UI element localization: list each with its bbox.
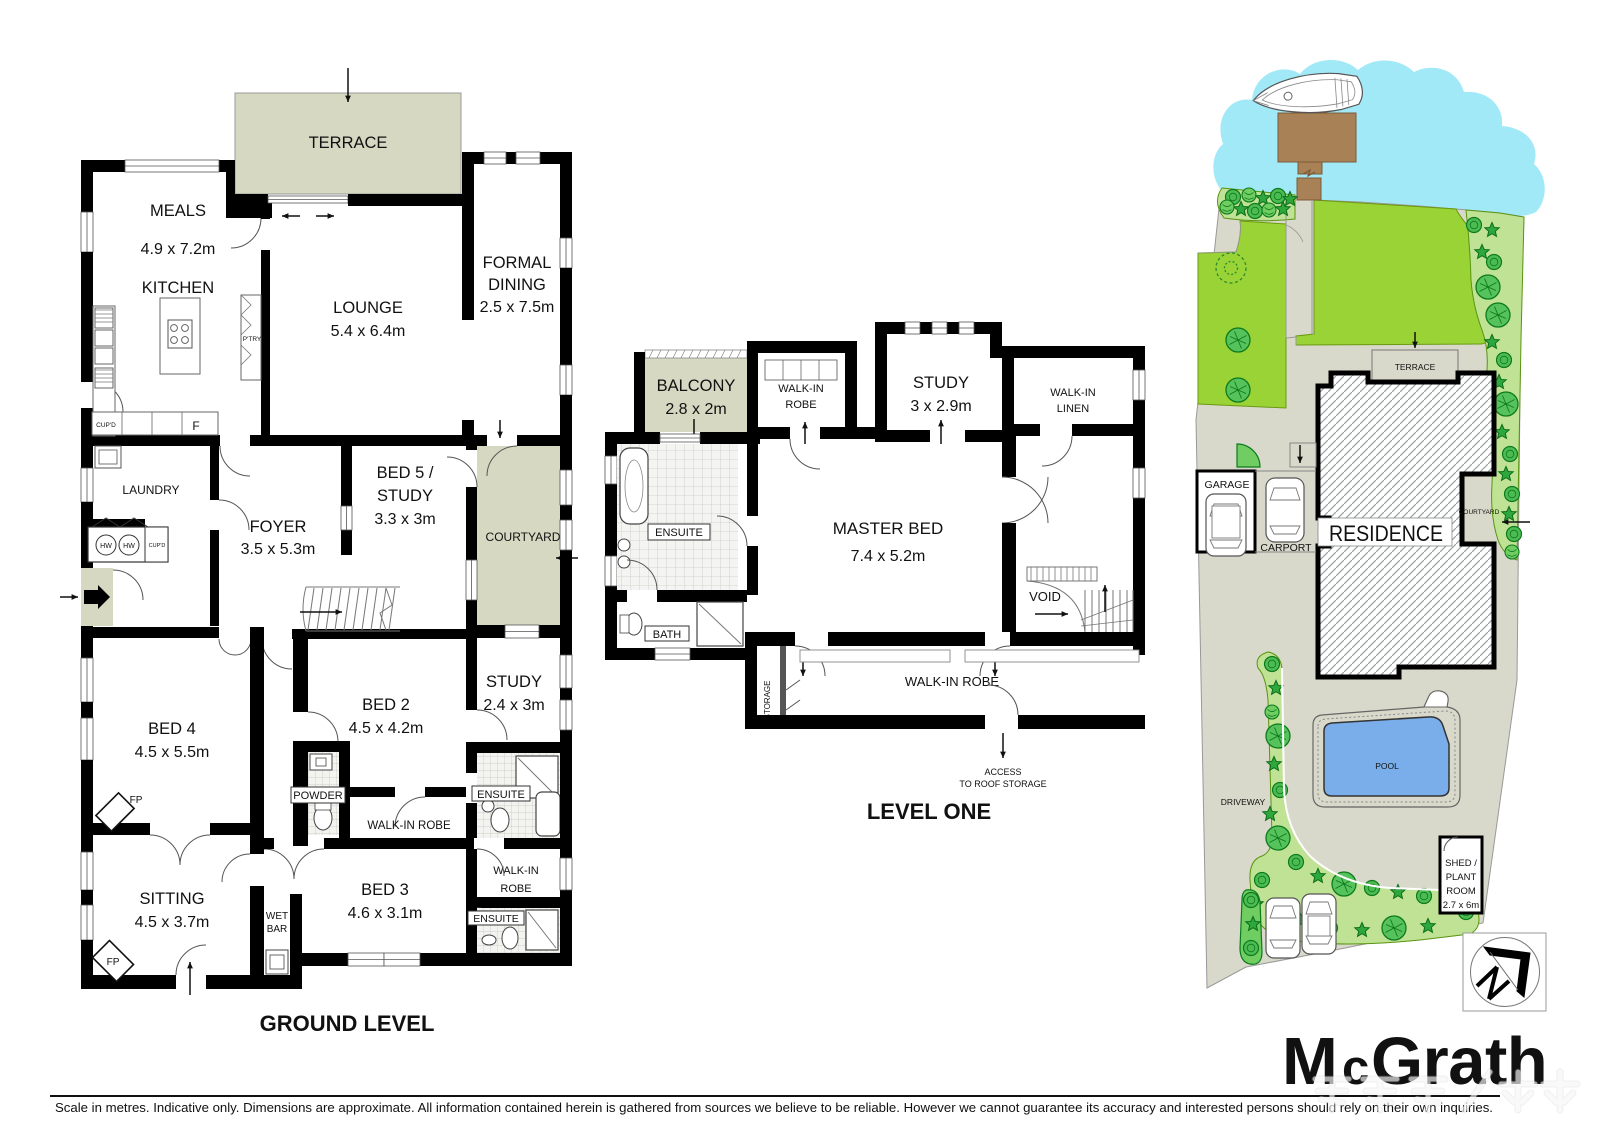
svg-text:LAUNDRY: LAUNDRY <box>122 483 179 497</box>
svg-text:GARAGE: GARAGE <box>1205 479 1250 491</box>
svg-text:MEALS: MEALS <box>150 202 206 220</box>
svg-text:POWDER: POWDER <box>293 790 343 802</box>
svg-text:FOYER: FOYER <box>250 518 307 536</box>
svg-text:WET: WET <box>266 911 288 922</box>
svg-text:TO ROOF STORAGE: TO ROOF STORAGE <box>959 779 1046 789</box>
svg-text:BALCONY: BALCONY <box>657 377 736 395</box>
svg-text:STUDY: STUDY <box>377 487 433 505</box>
svg-text:2.7 x 6m: 2.7 x 6m <box>1443 900 1480 911</box>
svg-text:DRIVEWAY: DRIVEWAY <box>1221 797 1266 807</box>
svg-text:ROBE: ROBE <box>500 883 531 895</box>
svg-text:STUDY: STUDY <box>913 374 969 392</box>
svg-text:4.9 x 7.2m: 4.9 x 7.2m <box>141 241 216 258</box>
svg-text:5.4 x 6.4m: 5.4 x 6.4m <box>331 323 406 340</box>
svg-text:TERRACE: TERRACE <box>309 134 388 152</box>
svg-text:ENSUITE: ENSUITE <box>655 527 703 539</box>
svg-text:CUP'D: CUP'D <box>149 543 166 549</box>
svg-text:F: F <box>192 419 199 433</box>
svg-text:ENSUITE: ENSUITE <box>473 913 519 925</box>
svg-text:LINEN: LINEN <box>1057 403 1089 415</box>
svg-text:Scale in metres. Indicative on: Scale in metres. Indicative only. Dimens… <box>55 1100 1493 1115</box>
svg-text:BAR: BAR <box>267 924 288 935</box>
svg-text:KITCHEN: KITCHEN <box>142 279 214 297</box>
svg-text:LOUNGE: LOUNGE <box>333 299 403 317</box>
svg-text:2.5 x 7.5m: 2.5 x 7.5m <box>480 299 555 316</box>
svg-text:SHED /: SHED / <box>1445 858 1477 869</box>
svg-text:STORAGE: STORAGE <box>763 681 772 720</box>
svg-text:BED 2: BED 2 <box>362 696 410 714</box>
svg-text:WALK-IN ROBE: WALK-IN ROBE <box>367 820 451 832</box>
svg-text:4.5 x 5.5m: 4.5 x 5.5m <box>135 744 210 761</box>
svg-text:ENSUITE: ENSUITE <box>477 789 525 801</box>
svg-text:4.5 x 4.2m: 4.5 x 4.2m <box>349 720 424 737</box>
svg-text:SITTING: SITTING <box>139 890 204 908</box>
svg-text:TERRACE: TERRACE <box>1395 362 1436 372</box>
svg-text:ACCESS: ACCESS <box>984 767 1021 777</box>
svg-text:BATH: BATH <box>653 629 682 641</box>
svg-text:COURTYARD: COURTYARD <box>1459 509 1500 516</box>
svg-text:3.3 x 3m: 3.3 x 3m <box>374 511 435 528</box>
svg-text:4.6 x 3.1m: 4.6 x 3.1m <box>348 905 423 922</box>
svg-text:STUDY: STUDY <box>486 673 542 691</box>
svg-text:CUP'D: CUP'D <box>96 422 116 429</box>
svg-text:VOID: VOID <box>1029 589 1061 604</box>
svg-text:ROBE: ROBE <box>785 399 816 411</box>
svg-text:BED 5 /: BED 5 / <box>377 464 434 482</box>
svg-text:P'TRY: P'TRY <box>243 336 262 343</box>
svg-text:2.4 x 3m: 2.4 x 3m <box>483 697 544 714</box>
svg-text:PLANT: PLANT <box>1446 872 1477 883</box>
svg-text:7.4 x 5.2m: 7.4 x 5.2m <box>851 548 926 565</box>
svg-text:BED 3: BED 3 <box>361 881 409 899</box>
svg-text:DINING: DINING <box>488 276 546 294</box>
svg-text:2.8 x 2m: 2.8 x 2m <box>665 401 726 418</box>
svg-text:COURTYARD: COURTYARD <box>486 530 561 544</box>
svg-text:GROUND LEVEL: GROUND LEVEL <box>260 1011 435 1036</box>
svg-text:c: c <box>1342 1041 1369 1095</box>
svg-text:ROOM: ROOM <box>1446 886 1476 897</box>
svg-text:MASTER BED: MASTER BED <box>833 519 944 538</box>
svg-text:WALK-IN ROBE: WALK-IN ROBE <box>905 674 999 689</box>
svg-text:POOL: POOL <box>1375 761 1399 771</box>
svg-text:LEVEL ONE: LEVEL ONE <box>867 799 991 824</box>
svg-text:FP: FP <box>107 957 120 968</box>
svg-text:WALK-IN: WALK-IN <box>1050 387 1095 399</box>
svg-text:3 x 2.9m: 3 x 2.9m <box>910 398 971 415</box>
svg-text:HW: HW <box>123 543 135 550</box>
svg-text:FORMAL: FORMAL <box>483 254 552 272</box>
svg-text:WALK-IN: WALK-IN <box>493 865 538 877</box>
svg-text:FP: FP <box>130 795 143 806</box>
svg-text:BED 4: BED 4 <box>148 720 196 738</box>
svg-text:RESIDENCE: RESIDENCE <box>1329 521 1443 546</box>
svg-text:3.5 x 5.3m: 3.5 x 5.3m <box>241 541 316 558</box>
svg-text:HW: HW <box>100 543 112 550</box>
svg-text:4.5 x 3.7m: 4.5 x 3.7m <box>135 914 210 931</box>
svg-text:WALK-IN: WALK-IN <box>778 383 823 395</box>
